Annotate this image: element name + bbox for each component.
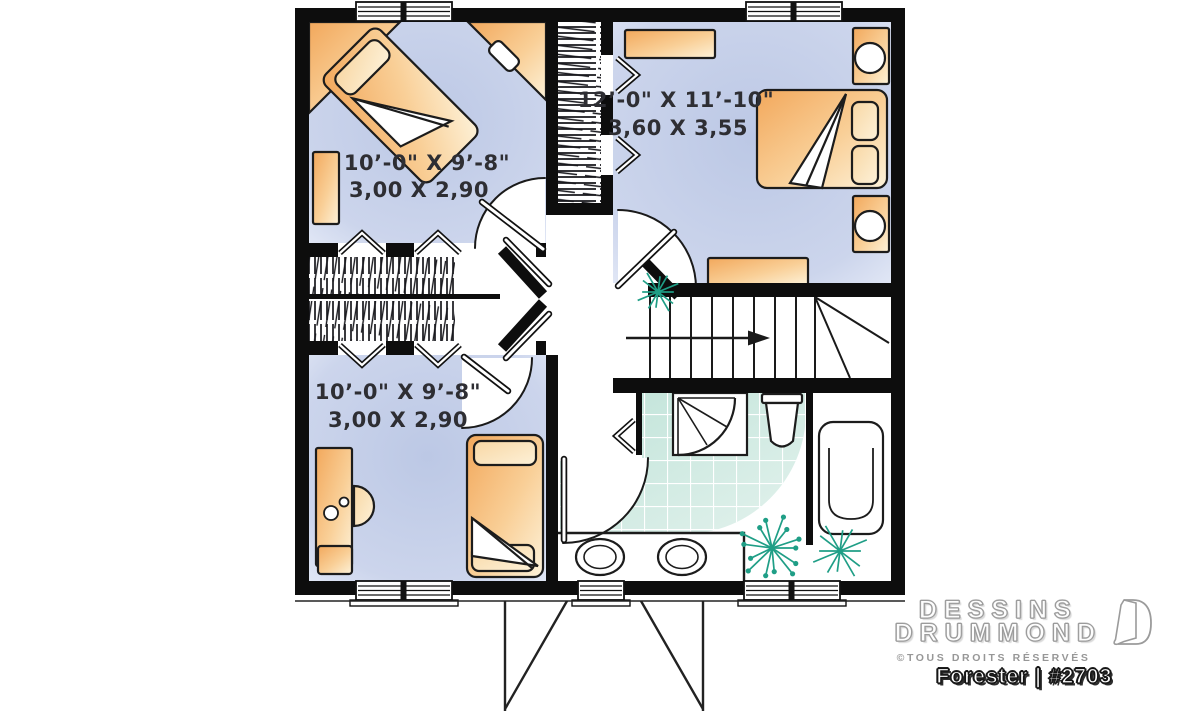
dresser [313, 152, 339, 224]
stool [318, 546, 352, 574]
room-dimension-label: 10’-0" X 9’-8" [344, 151, 510, 175]
toilet-tank [762, 394, 802, 403]
brand-logo-block: DESSINS DRUMMOND ©TOUS DROITS RÉSERVÉS F… [895, 594, 1154, 689]
pillow [852, 102, 878, 140]
roof-outline [295, 601, 905, 711]
window-bathroom-2 [738, 581, 846, 606]
window-bottom-left [350, 581, 458, 606]
brand-name-line2: DRUMMOND [895, 622, 1102, 645]
copyright-text: ©TOUS DROITS RÉSERVÉS [897, 652, 1154, 664]
drummond-door-logo-icon [1110, 594, 1154, 650]
pillow [474, 441, 536, 465]
plan-name: Forester | #2703 [895, 665, 1154, 689]
room-dimension-label: 3,00 X 2,90 [349, 178, 489, 202]
window-top-left [356, 2, 452, 21]
room-dimension-label: 3,60 X 3,55 [608, 116, 748, 140]
room-dimension-label: 3,00 X 2,90 [328, 408, 468, 432]
dresser [708, 258, 808, 285]
window-bathroom-1 [572, 581, 630, 606]
room-dimension-label: 12’-0" X 11’-10" [578, 88, 774, 112]
dresser [625, 30, 715, 58]
desk-lamp [324, 506, 338, 520]
floor-plan-page: 10’-0" X 9’-8" 3,00 X 2,90 12’-0" X 11’-… [0, 0, 1200, 711]
closet-master-strip [557, 22, 601, 203]
window-master [746, 2, 842, 21]
room-dimension-label: 10’-0" X 9’-8" [315, 380, 481, 404]
pillow [852, 146, 878, 184]
toilet [766, 403, 798, 447]
